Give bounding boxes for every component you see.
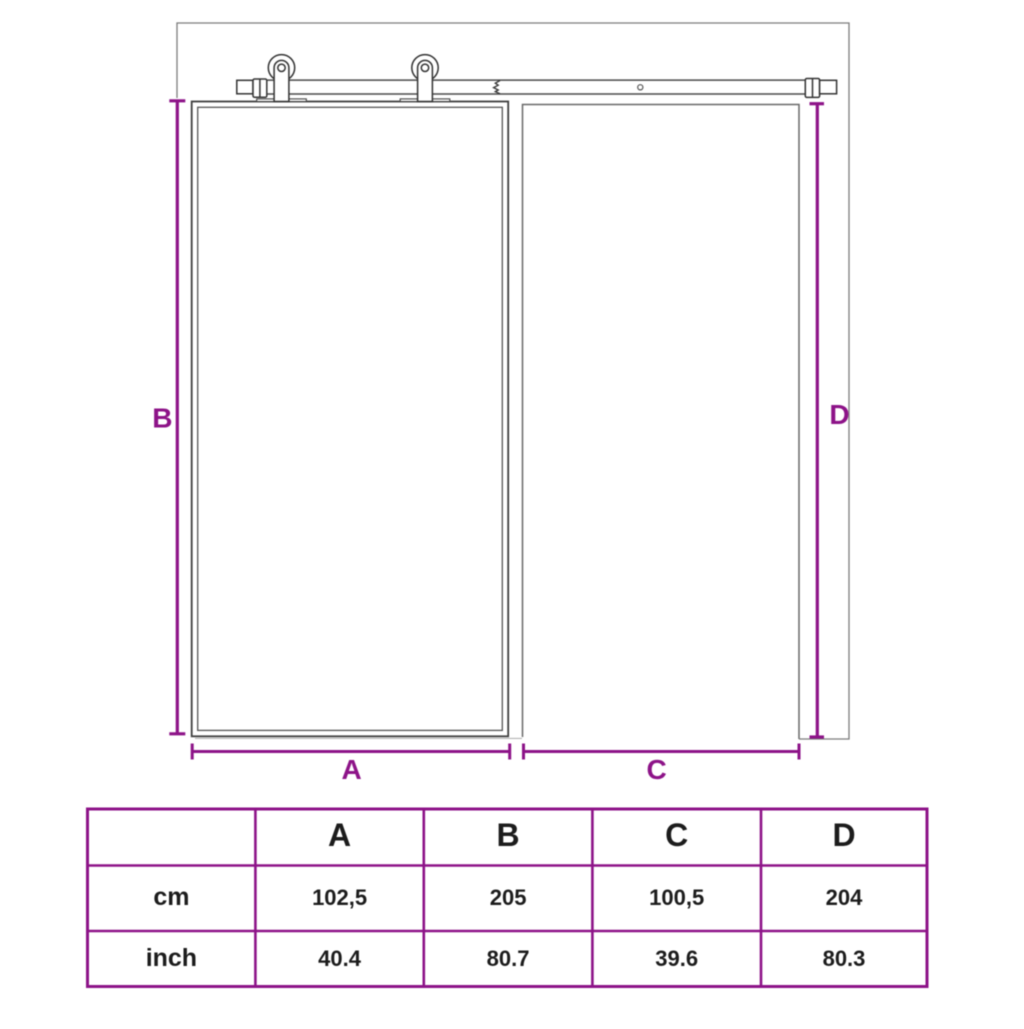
svg-text:C: C [646,754,666,785]
svg-text:A: A [328,817,351,853]
svg-text:A: A [341,754,361,785]
svg-text:205: 205 [490,885,527,910]
svg-text:D: D [832,817,855,853]
svg-text:40.4: 40.4 [318,946,362,971]
svg-text:inch: inch [146,944,197,972]
svg-text:B: B [497,817,520,853]
svg-text:D: D [829,399,849,430]
svg-text:39.6: 39.6 [655,946,698,971]
svg-text:102,5: 102,5 [312,885,367,910]
svg-text:204: 204 [826,885,863,910]
svg-text:B: B [152,403,172,434]
svg-text:C: C [665,817,688,853]
svg-text:100,5: 100,5 [649,885,704,910]
svg-text:80.7: 80.7 [487,946,530,971]
svg-text:80.3: 80.3 [823,946,866,971]
svg-text:cm: cm [153,883,189,911]
